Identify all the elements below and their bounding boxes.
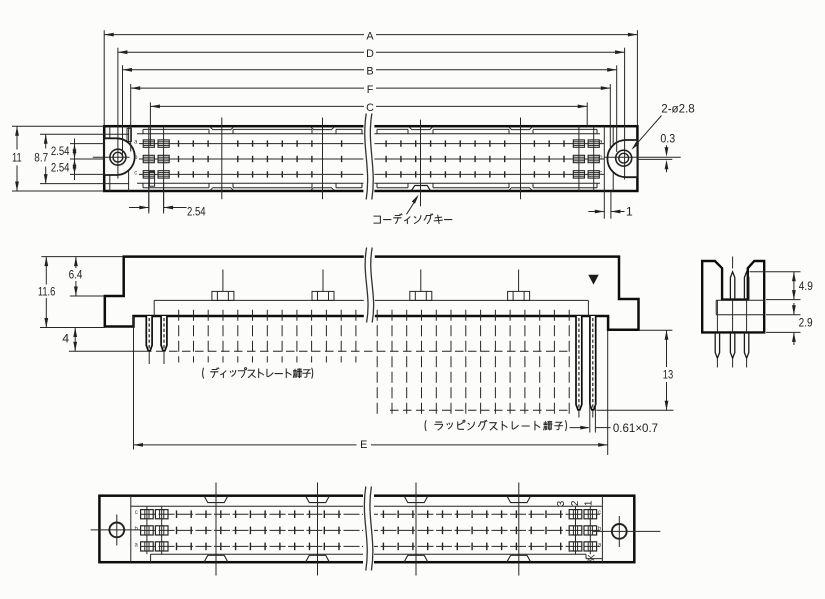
svg-text:11: 11 [12, 150, 22, 164]
svg-text:B: B [366, 65, 373, 77]
svg-text:a: a [135, 542, 139, 548]
svg-text:2.54: 2.54 [51, 144, 70, 158]
svg-text:4.9: 4.9 [799, 279, 813, 293]
svg-text:a: a [134, 140, 138, 146]
svg-text:D: D [366, 48, 374, 60]
svg-text:2.54: 2.54 [51, 161, 70, 175]
svg-text:c: c [598, 510, 601, 516]
svg-text:1: 1 [584, 500, 595, 506]
svg-text:c: c [134, 170, 137, 176]
svg-text:E: E [360, 439, 367, 451]
svg-text:2.54: 2.54 [187, 204, 206, 218]
svg-text:0.3: 0.3 [660, 132, 675, 146]
svg-text:2-ø2.8: 2-ø2.8 [661, 102, 695, 116]
svg-text:0.61×0.7: 0.61×0.7 [613, 421, 659, 435]
svg-text:4: 4 [62, 332, 69, 346]
svg-text:c: c [135, 510, 138, 516]
svg-text:b: b [599, 155, 603, 161]
svg-text:2: 2 [570, 500, 581, 506]
svg-text:a: a [598, 542, 602, 548]
svg-text:a: a [599, 140, 603, 146]
svg-text:1: 1 [626, 205, 633, 219]
svg-text:6.4: 6.4 [69, 268, 83, 282]
svg-text:2.9: 2.9 [799, 315, 813, 329]
svg-text:A: A [366, 31, 374, 43]
svg-text:8.7: 8.7 [34, 150, 48, 164]
svg-text:C: C [366, 102, 374, 114]
svg-text:3: 3 [556, 500, 567, 506]
svg-text:c: c [599, 170, 602, 176]
svg-text:11.6: 11.6 [38, 284, 56, 298]
svg-text:13: 13 [663, 367, 674, 381]
svg-text:F: F [367, 84, 374, 96]
